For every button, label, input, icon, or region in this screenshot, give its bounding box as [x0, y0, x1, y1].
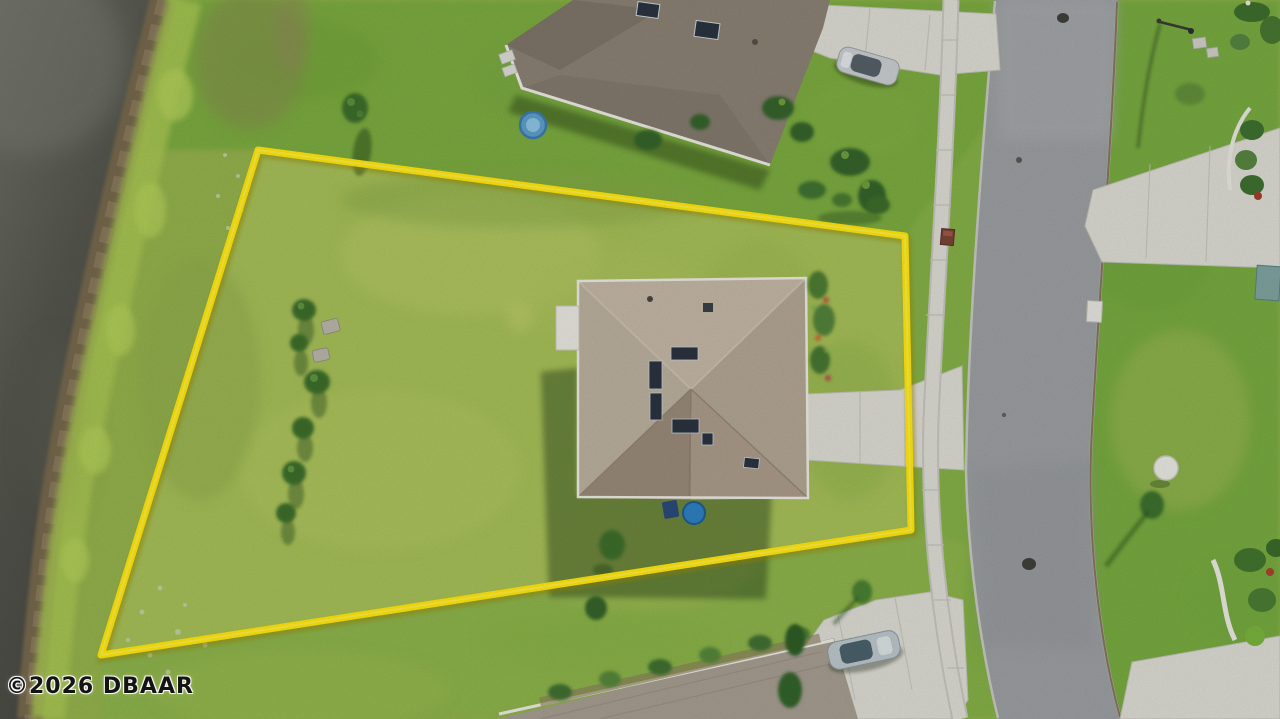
- aerial-scene: [0, 0, 1280, 719]
- aerial-photo: ©2026 DBAAR: [0, 0, 1280, 719]
- photo-grain: [0, 0, 1280, 719]
- watermark: ©2026 DBAAR: [6, 674, 194, 699]
